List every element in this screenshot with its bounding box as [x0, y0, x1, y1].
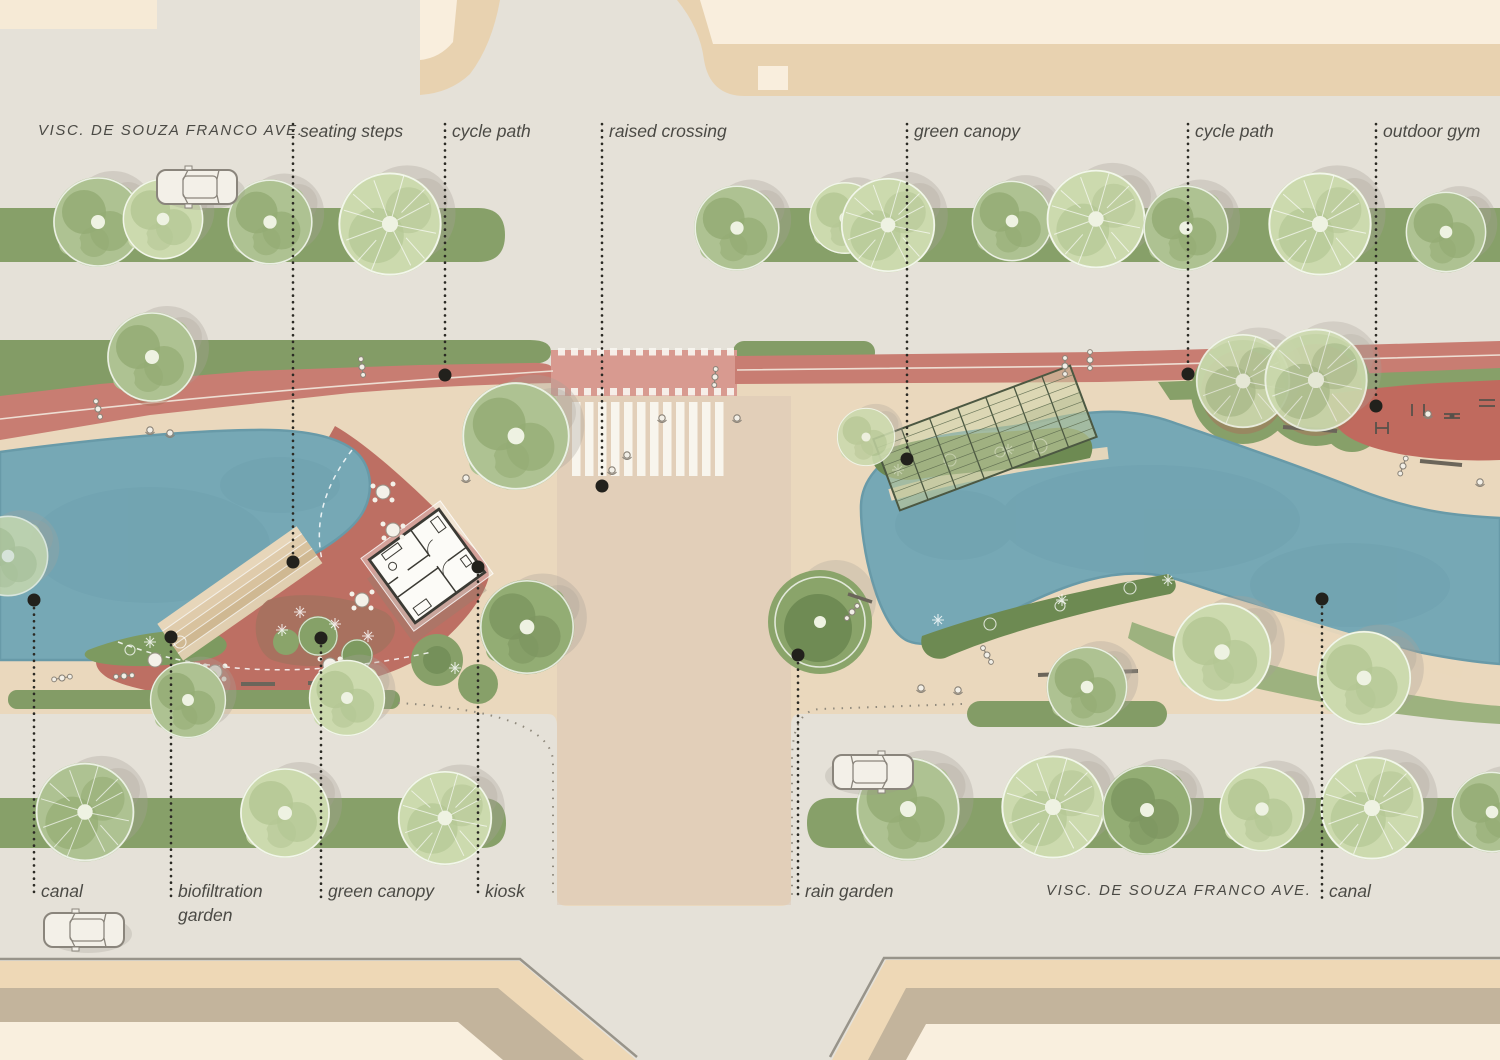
annotation-cycle-path-right: cycle path [1195, 120, 1274, 142]
car-bottom-left [44, 909, 132, 953]
annotation-green-canopy-bottom: green canopy [328, 880, 434, 902]
annotation-rain-garden: rain garden [805, 880, 894, 902]
car-bottom-center [825, 751, 913, 795]
masterplan-drawing: VISC. DE SOUZA FRANCO AVE. seating steps… [0, 0, 1500, 1060]
raised-crossing-band [551, 350, 737, 396]
annotation-outdoor-gym: outdoor gym [1383, 120, 1480, 142]
annotation-canal-left: canal [41, 880, 83, 902]
annotation-kiosk: kiosk [485, 880, 525, 902]
annotation-green-canopy-top: green canopy [914, 120, 1020, 142]
building-top-right [677, 0, 1500, 96]
annotation-raised-crossing: raised crossing [609, 120, 727, 142]
car-top-left [157, 166, 245, 210]
annotation-canal-right: canal [1329, 880, 1371, 902]
building-top-left [0, 0, 157, 29]
annotation-seating-steps: seating steps [300, 120, 403, 142]
building-bottom-right [830, 958, 1500, 1060]
annotation-cycle-path-left: cycle path [452, 120, 531, 142]
street-name-bottom: VISC. DE SOUZA FRANCO AVE. [1046, 882, 1312, 899]
street-name-top: VISC. DE SOUZA FRANCO AVE. [38, 122, 304, 139]
annotation-biofiltration-garden: biofiltration garden [178, 879, 286, 927]
